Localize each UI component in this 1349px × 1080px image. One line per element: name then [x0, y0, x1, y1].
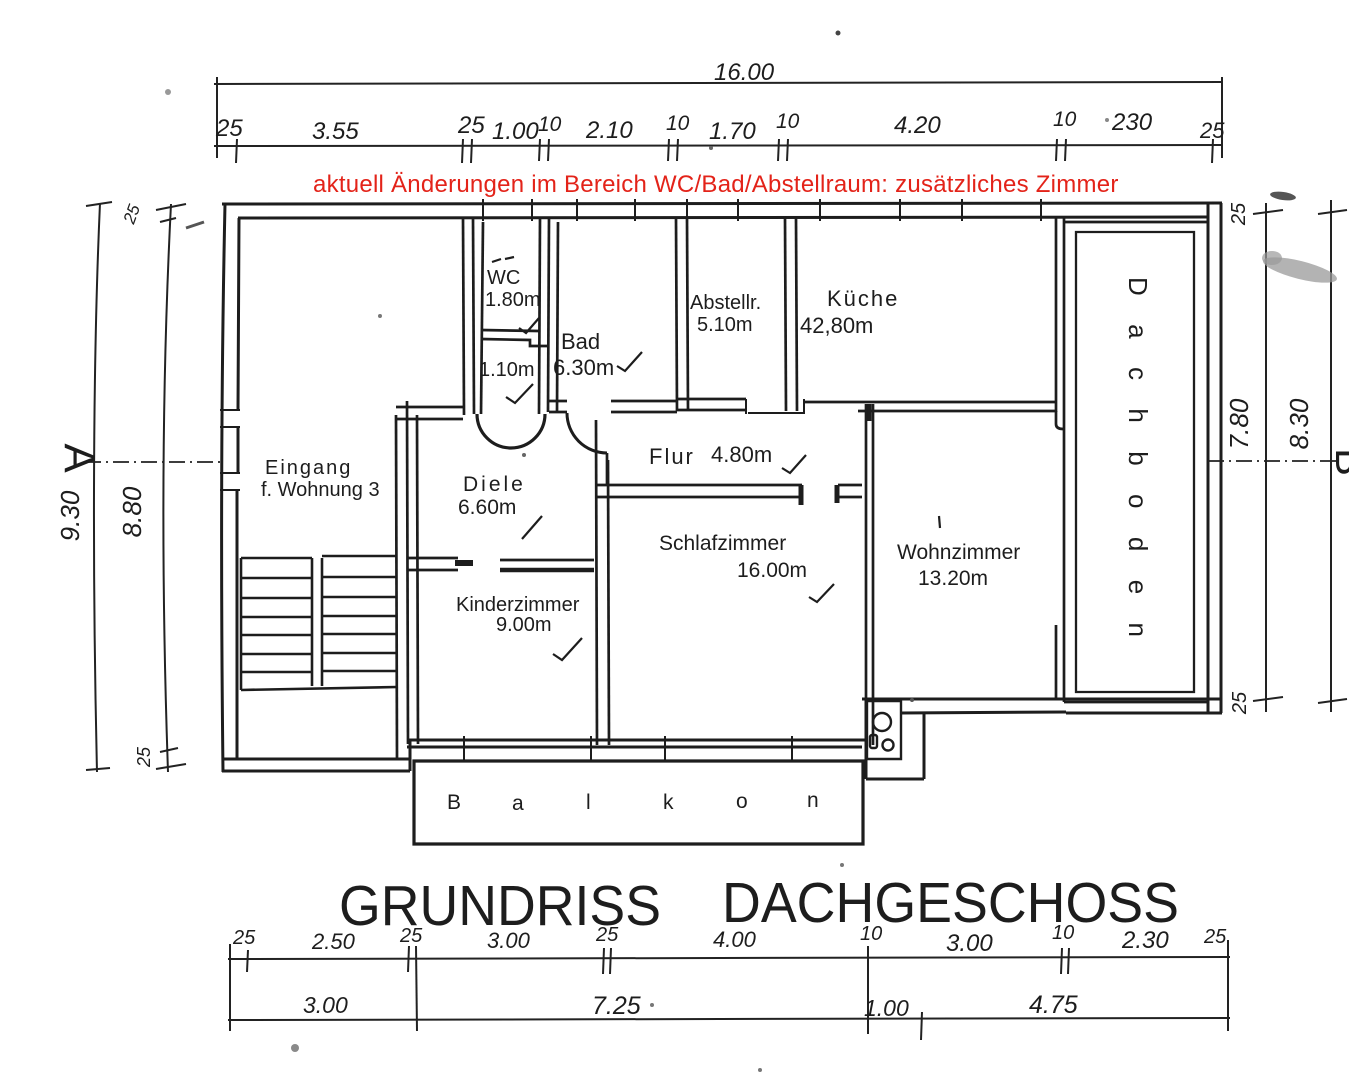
svg-text:4.00: 4.00 — [713, 927, 757, 952]
svg-text:B: B — [1327, 448, 1349, 476]
svg-text:3.00: 3.00 — [946, 930, 993, 957]
svg-text:a: a — [512, 792, 524, 815]
svg-text:9.00m: 9.00m — [496, 614, 552, 636]
svg-text:25: 25 — [457, 112, 485, 139]
svg-text:Küche: Küche — [827, 286, 899, 311]
svg-text:Flur: Flur — [649, 444, 695, 469]
svg-text:1.10m: 1.10m — [479, 359, 535, 381]
svg-text:2.50: 2.50 — [311, 929, 356, 954]
svg-text:10: 10 — [1053, 108, 1077, 131]
svg-text:l: l — [586, 791, 591, 814]
svg-text:Dachboden: Dachboden — [1123, 277, 1153, 637]
svg-text:10: 10 — [860, 923, 882, 945]
svg-text:5.10m: 5.10m — [697, 314, 753, 336]
svg-text:f. Wohnung 3: f. Wohnung 3 — [261, 479, 380, 501]
svg-text:k: k — [663, 791, 674, 814]
svg-text:4.75: 4.75 — [1029, 991, 1078, 1019]
svg-text:Kinderzimmer: Kinderzimmer — [456, 594, 580, 616]
svg-text:9.30: 9.30 — [55, 490, 85, 541]
svg-text:230: 230 — [1111, 109, 1153, 136]
svg-text:6.60m: 6.60m — [458, 496, 516, 519]
svg-text:10: 10 — [1052, 922, 1074, 944]
svg-text:3.00: 3.00 — [487, 928, 531, 953]
svg-text:7.80: 7.80 — [1224, 398, 1254, 449]
svg-text:25: 25 — [1229, 691, 1251, 715]
svg-text:Abstellr.: Abstellr. — [690, 292, 761, 314]
svg-text:Bad: Bad — [561, 329, 600, 354]
svg-text:10: 10 — [666, 112, 690, 135]
svg-text:2.30: 2.30 — [1121, 927, 1169, 954]
svg-text:42,80m: 42,80m — [800, 313, 873, 338]
svg-text:25: 25 — [1199, 118, 1225, 143]
svg-text:DACHGESCHOSS: DACHGESCHOSS — [722, 871, 1179, 935]
svg-text:1.70: 1.70 — [709, 118, 756, 145]
svg-text:4.20: 4.20 — [894, 112, 941, 139]
svg-text:7.25: 7.25 — [592, 992, 641, 1020]
svg-text:4.80m: 4.80m — [711, 442, 772, 467]
svg-text:10: 10 — [538, 113, 562, 136]
svg-text:16.00m: 16.00m — [737, 559, 807, 582]
svg-text:25: 25 — [595, 924, 619, 946]
svg-text:25: 25 — [1228, 202, 1250, 226]
svg-text:aktuell Änderungen im Bereich: aktuell Änderungen im Bereich WC/Bad/Abs… — [313, 171, 1119, 198]
svg-text:1.80m: 1.80m — [485, 289, 541, 311]
svg-text:Wohnzimmer: Wohnzimmer — [897, 541, 1020, 564]
svg-text:25: 25 — [232, 927, 256, 949]
svg-text:Diele: Diele — [463, 473, 526, 496]
svg-text:13.20m: 13.20m — [918, 567, 988, 590]
svg-text:16.00: 16.00 — [714, 59, 775, 86]
svg-text:1.00: 1.00 — [492, 118, 539, 145]
svg-text:o: o — [736, 790, 748, 813]
svg-text:1.00: 1.00 — [864, 995, 909, 1021]
svg-text:WC: WC — [487, 267, 520, 289]
svg-text:10: 10 — [776, 110, 800, 133]
svg-text:3.55: 3.55 — [312, 118, 359, 145]
svg-text:6.30m: 6.30m — [553, 355, 614, 380]
svg-text:2.10: 2.10 — [585, 117, 633, 144]
svg-text:8.80: 8.80 — [117, 486, 147, 537]
svg-text:25: 25 — [134, 746, 154, 768]
svg-text:Eingang: Eingang — [265, 457, 352, 479]
svg-text:25: 25 — [119, 201, 144, 227]
svg-text:Schlafzimmer: Schlafzimmer — [659, 532, 786, 555]
svg-text:A: A — [54, 443, 103, 473]
svg-text:B: B — [447, 791, 461, 814]
svg-text:8.30: 8.30 — [1284, 398, 1314, 449]
svg-text:25: 25 — [1203, 926, 1227, 948]
svg-text:3.00: 3.00 — [303, 992, 348, 1018]
svg-text:25: 25 — [399, 925, 423, 947]
svg-text:n: n — [807, 789, 819, 812]
svg-text:25: 25 — [215, 115, 243, 142]
